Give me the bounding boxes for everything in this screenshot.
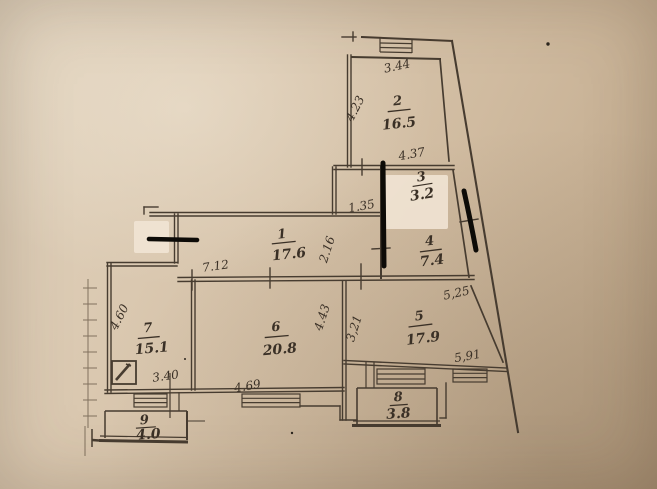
dim-4-69: 4.69 xyxy=(232,377,262,396)
svg-text:4: 4 xyxy=(424,234,435,250)
svg-text:6: 6 xyxy=(271,320,281,336)
dim-3-44: 3.44 xyxy=(382,56,411,75)
svg-text:3: 3 xyxy=(416,169,427,185)
electric-panel-icon xyxy=(112,361,136,384)
svg-text:2: 2 xyxy=(391,94,403,110)
room-9-label: 9 4.0 xyxy=(135,412,162,444)
room-4-label: 4 7.4 xyxy=(417,233,445,271)
marker-vertical-line xyxy=(383,163,384,266)
svg-text:8: 8 xyxy=(393,390,403,406)
dim-4-23: 4.23 xyxy=(342,93,367,124)
svg-text:4.0: 4.0 xyxy=(136,426,162,444)
hatch-marks xyxy=(83,279,97,456)
svg-text:16.5: 16.5 xyxy=(381,114,417,133)
svg-text:5: 5 xyxy=(414,309,425,325)
floor-plan-photo: 1 17.6 2 16.5 3 3.2 4 7.4 5 17.9 6 20.8 xyxy=(0,0,657,489)
paper-specks xyxy=(184,42,550,434)
dim-5-25: 5,25 xyxy=(442,283,471,302)
dim-7-12: 7.12 xyxy=(201,257,229,275)
svg-text:17.6: 17.6 xyxy=(271,245,307,265)
svg-text:1: 1 xyxy=(277,227,288,243)
room-2-label: 2 16.5 xyxy=(379,92,417,133)
svg-text:20.8: 20.8 xyxy=(261,340,298,359)
svg-text:3.8: 3.8 xyxy=(386,405,412,423)
dim-3-40: 3.40 xyxy=(151,367,180,385)
marker-entrance-line xyxy=(149,239,197,240)
dim-4-37: 4.37 xyxy=(396,145,426,164)
svg-text:17.9: 17.9 xyxy=(405,329,441,349)
svg-text:7.4: 7.4 xyxy=(419,252,445,271)
room-6-label: 6 20.8 xyxy=(259,318,298,359)
room-5-label: 5 17.9 xyxy=(403,307,442,349)
dim-2-16: 2.16 xyxy=(316,234,338,265)
dim-4-43: 4.43 xyxy=(311,302,333,333)
floor-plan-drawing: 1 17.6 2 16.5 3 3.2 4 7.4 5 17.9 6 20.8 xyxy=(0,0,657,489)
svg-text:7: 7 xyxy=(143,321,153,337)
dim-5-91: 5,91 xyxy=(453,347,482,365)
dim-4-60: 4.60 xyxy=(106,302,131,333)
room-7-label: 7 15.1 xyxy=(132,319,169,358)
svg-text:15.1: 15.1 xyxy=(134,339,169,358)
room-1-label: 1 17.6 xyxy=(269,225,307,264)
room-8-label: 8 3.8 xyxy=(385,389,412,423)
